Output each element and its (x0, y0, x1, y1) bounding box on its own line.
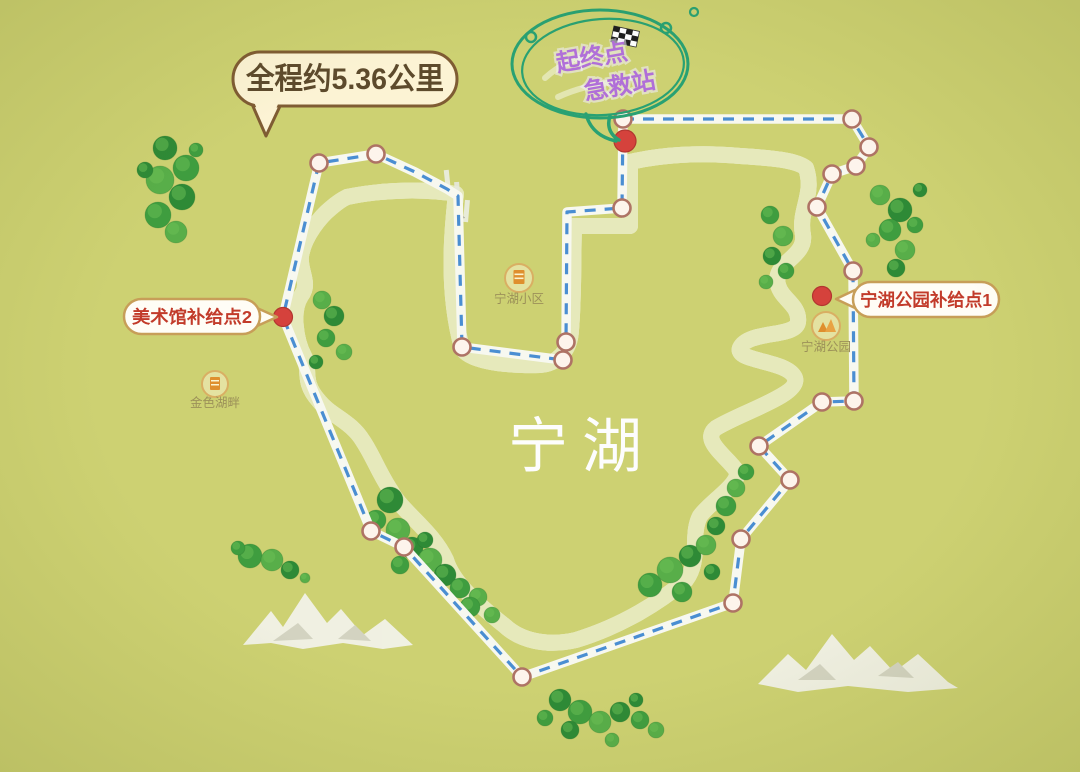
tree-highlight (263, 551, 275, 563)
tree-highlight (698, 537, 709, 548)
tree-highlight (775, 228, 786, 239)
route-waypoint-icon (846, 393, 863, 410)
tree-highlight (674, 584, 685, 595)
tree-highlight (780, 264, 789, 273)
tree-highlight (650, 723, 659, 732)
tree-highlight (190, 144, 198, 152)
tree-highlight (867, 234, 875, 242)
route-map: 宁湖 金色湖畔 宁湖小区 (0, 0, 1080, 772)
tree-highlight (909, 218, 918, 227)
tree-highlight (763, 207, 773, 217)
tree-highlight (729, 480, 739, 490)
tree-highlight (897, 242, 908, 253)
tree-highlight (380, 489, 394, 503)
building-icon (210, 377, 220, 390)
tree-highlight (326, 308, 337, 319)
route-waypoint-icon (454, 339, 471, 356)
supply-point-2-label: 美术馆补给点2 (124, 299, 277, 334)
tree-highlight (436, 566, 448, 578)
route-waypoint-icon (363, 523, 380, 540)
supply-point-2-text: 美术馆补给点2 (132, 307, 252, 327)
tree-highlight (139, 163, 148, 172)
route-waypoint-icon (396, 539, 413, 556)
route-waypoint-icon (782, 472, 799, 489)
route-waypoint-icon (861, 139, 878, 156)
tree-highlight (232, 542, 240, 550)
poi-label: 宁湖公园 (801, 339, 851, 354)
tree-highlight (660, 559, 674, 573)
route-waypoint-icon (751, 438, 768, 455)
tree-highlight (486, 608, 495, 617)
distance-text: 全程约5.36公里 (245, 62, 444, 96)
tree-highlight (881, 221, 893, 233)
tree-highlight (718, 498, 729, 509)
tree-highlight (176, 157, 190, 171)
supply-point-1-marker-icon (813, 287, 832, 306)
poi-circle-icon (812, 312, 840, 340)
tree-highlight (740, 465, 749, 474)
tree-highlight (419, 533, 428, 542)
tree-highlight (148, 204, 162, 218)
tree-highlight (388, 520, 401, 533)
tree-highlight (591, 713, 603, 725)
tree-highlight (301, 574, 307, 580)
route-waypoint-icon (725, 595, 742, 612)
tree-highlight (889, 260, 899, 270)
tree-highlight (706, 565, 715, 574)
tree-highlight (283, 562, 293, 572)
tree-highlight (319, 330, 329, 340)
tree-highlight (606, 734, 614, 742)
route-map-svg: 宁湖 金色湖畔 宁湖小区 (0, 0, 1080, 772)
tree-highlight (172, 186, 186, 200)
route-waypoint-icon (311, 155, 328, 172)
route-waypoint-icon (555, 352, 572, 369)
tree-highlight (551, 691, 563, 703)
route-waypoint-icon (848, 158, 865, 175)
route-waypoint-icon (368, 146, 385, 163)
tree-highlight (681, 547, 693, 559)
tree-highlight (630, 694, 638, 702)
tree-highlight (570, 702, 583, 715)
tree-highlight (872, 187, 883, 198)
tree-highlight (890, 200, 903, 213)
poi-label: 宁湖小区 (494, 291, 544, 306)
tree-highlight (914, 184, 922, 192)
route-waypoint-icon (844, 111, 861, 128)
route-waypoint-icon (514, 669, 531, 686)
tree-highlight (393, 557, 403, 567)
route-waypoint-icon (809, 199, 826, 216)
route-waypoint-icon (845, 263, 862, 280)
tree-highlight (640, 575, 653, 588)
route-waypoint-icon (614, 200, 631, 217)
tree-highlight (709, 518, 719, 528)
tree-highlight (315, 292, 325, 302)
building-icon (514, 270, 525, 284)
tree-highlight (760, 276, 768, 284)
tree-highlight (167, 223, 179, 235)
tree-highlight (612, 704, 623, 715)
tree-highlight (563, 722, 573, 732)
tree-highlight (452, 580, 463, 591)
supply-point-1-label: 宁湖公园补给点1 (836, 282, 999, 317)
route-waypoint-icon (814, 394, 831, 411)
supply-point-1-text: 宁湖公园补给点1 (860, 290, 992, 310)
route-waypoint-icon (733, 531, 750, 548)
tree-highlight (633, 712, 643, 722)
tree-highlight (155, 138, 168, 151)
tree-highlight (765, 248, 775, 258)
tree-highlight (310, 356, 318, 364)
tree-highlight (539, 711, 548, 720)
poi-label: 金色湖畔 (190, 395, 240, 410)
route-waypoint-icon (558, 334, 575, 351)
lake-name: 宁湖 (508, 413, 656, 480)
route-waypoint-icon (824, 166, 841, 183)
tree-highlight (338, 345, 347, 354)
